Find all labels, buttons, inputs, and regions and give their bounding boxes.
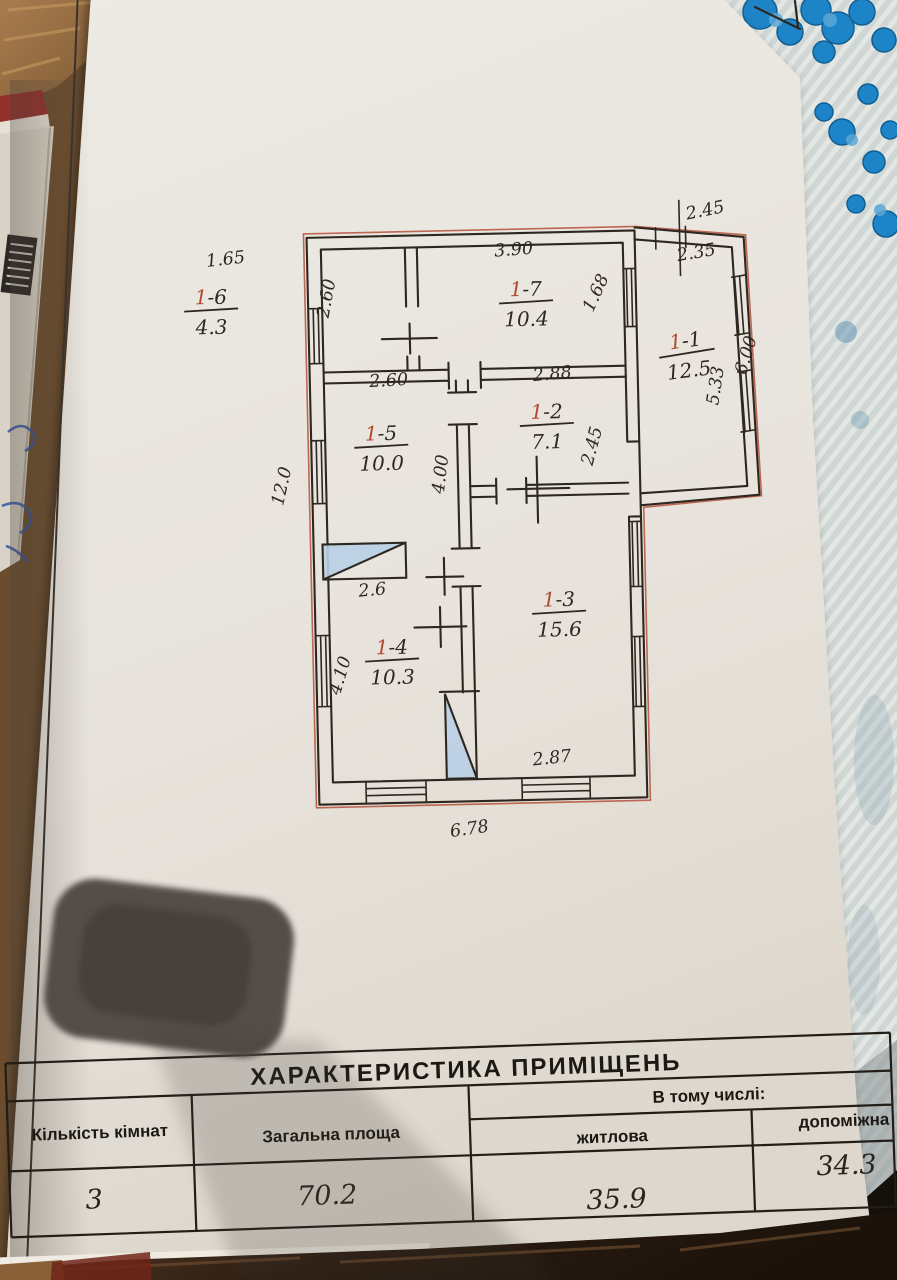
room-number: 1-3	[542, 587, 575, 612]
photo-of-floorplan-sheet: 1-6 4.3 1-7 10.4 1-1 12.5 1-5 10.0 1-2 7…	[0, 0, 897, 1280]
room-number: 1-7	[509, 277, 542, 302]
room-area: 7.1	[531, 429, 563, 454]
value-rooms-count: 3	[85, 1184, 103, 1216]
room-area: 10.0	[359, 451, 404, 476]
value-auxiliary-area: 34.3	[816, 1149, 877, 1182]
value-living-area: 35.9	[586, 1183, 647, 1216]
header-living: житлова	[575, 1126, 648, 1148]
room-number: 1-6	[194, 285, 227, 310]
dim-stairs-width: 2.6	[356, 579, 387, 602]
header-auxiliary: допоміжна	[798, 1110, 890, 1132]
dim-1-7-width: 3.90	[493, 239, 533, 262]
room-number: 1-4	[375, 635, 408, 660]
room-area: 15.6	[537, 617, 582, 642]
room-number: 1-1	[668, 326, 703, 354]
dim-1-2-width: 2.88	[531, 363, 573, 387]
dim-1-6-width: 1.65	[205, 248, 246, 272]
room-number: 1-5	[365, 421, 398, 446]
room-area: 4.3	[194, 315, 227, 340]
room-area: 10.4	[504, 306, 549, 331]
header-including: В тому числі:	[652, 1084, 765, 1107]
room-area: 10.3	[370, 665, 415, 690]
dim-1-5-width: 2.60	[368, 370, 409, 392]
room-number: 1-2	[530, 399, 563, 424]
